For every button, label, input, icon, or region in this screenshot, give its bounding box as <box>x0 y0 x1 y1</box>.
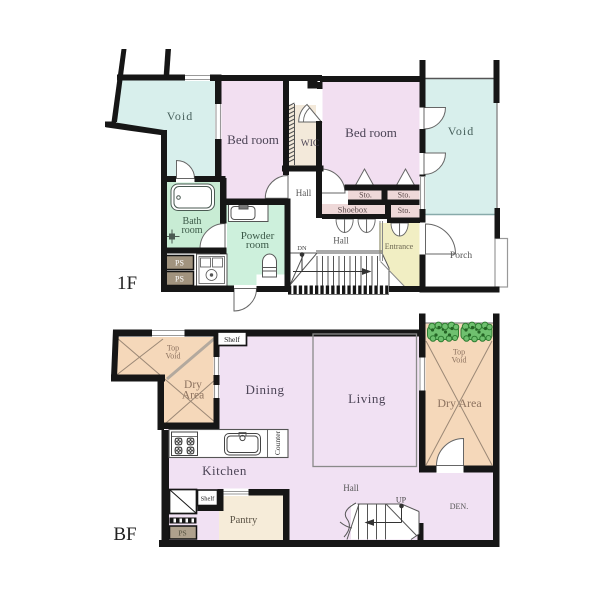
svg-text:Void: Void <box>452 356 467 365</box>
svg-text:PS: PS <box>175 275 184 284</box>
svg-text:Hall: Hall <box>333 236 349 246</box>
svg-text:1F: 1F <box>117 273 137 294</box>
svg-text:Porch: Porch <box>450 251 472 261</box>
svg-text:BF: BF <box>113 524 136 545</box>
svg-text:WIC: WIC <box>301 139 319 149</box>
svg-text:Living: Living <box>348 391 386 406</box>
svg-text:DEN.: DEN. <box>450 502 468 511</box>
svg-text:Area: Area <box>182 390 204 402</box>
svg-text:Shelf: Shelf <box>224 335 240 344</box>
svg-text:PS: PS <box>178 529 186 538</box>
svg-text:DN: DN <box>297 245 307 252</box>
svg-text:Hall: Hall <box>343 483 359 493</box>
svg-text:Sto.: Sto. <box>398 191 411 200</box>
svg-text:Kitchen: Kitchen <box>202 463 247 478</box>
svg-text:room: room <box>246 239 270 251</box>
svg-text:Sto.: Sto. <box>398 206 411 215</box>
svg-text:Dining: Dining <box>245 382 284 397</box>
svg-text:room: room <box>181 225 202 236</box>
svg-text:Sto.: Sto. <box>359 191 372 200</box>
svg-text:Bed room: Bed room <box>345 125 397 140</box>
svg-text:Shelf: Shelf <box>201 496 216 503</box>
svg-text:PS: PS <box>175 259 184 268</box>
svg-text:Hall: Hall <box>296 188 312 198</box>
svg-text:Counter: Counter <box>273 430 282 455</box>
svg-text:Pantry: Pantry <box>230 515 258 526</box>
svg-text:Dry Area: Dry Area <box>437 396 482 410</box>
svg-text:UP: UP <box>396 496 407 505</box>
svg-text:Void: Void <box>167 109 193 123</box>
svg-text:Entrance: Entrance <box>385 242 414 251</box>
svg-text:Void: Void <box>166 352 181 361</box>
svg-text:Void: Void <box>448 124 474 138</box>
svg-text:Shoebox: Shoebox <box>338 205 369 215</box>
svg-text:Bed room: Bed room <box>227 132 279 147</box>
